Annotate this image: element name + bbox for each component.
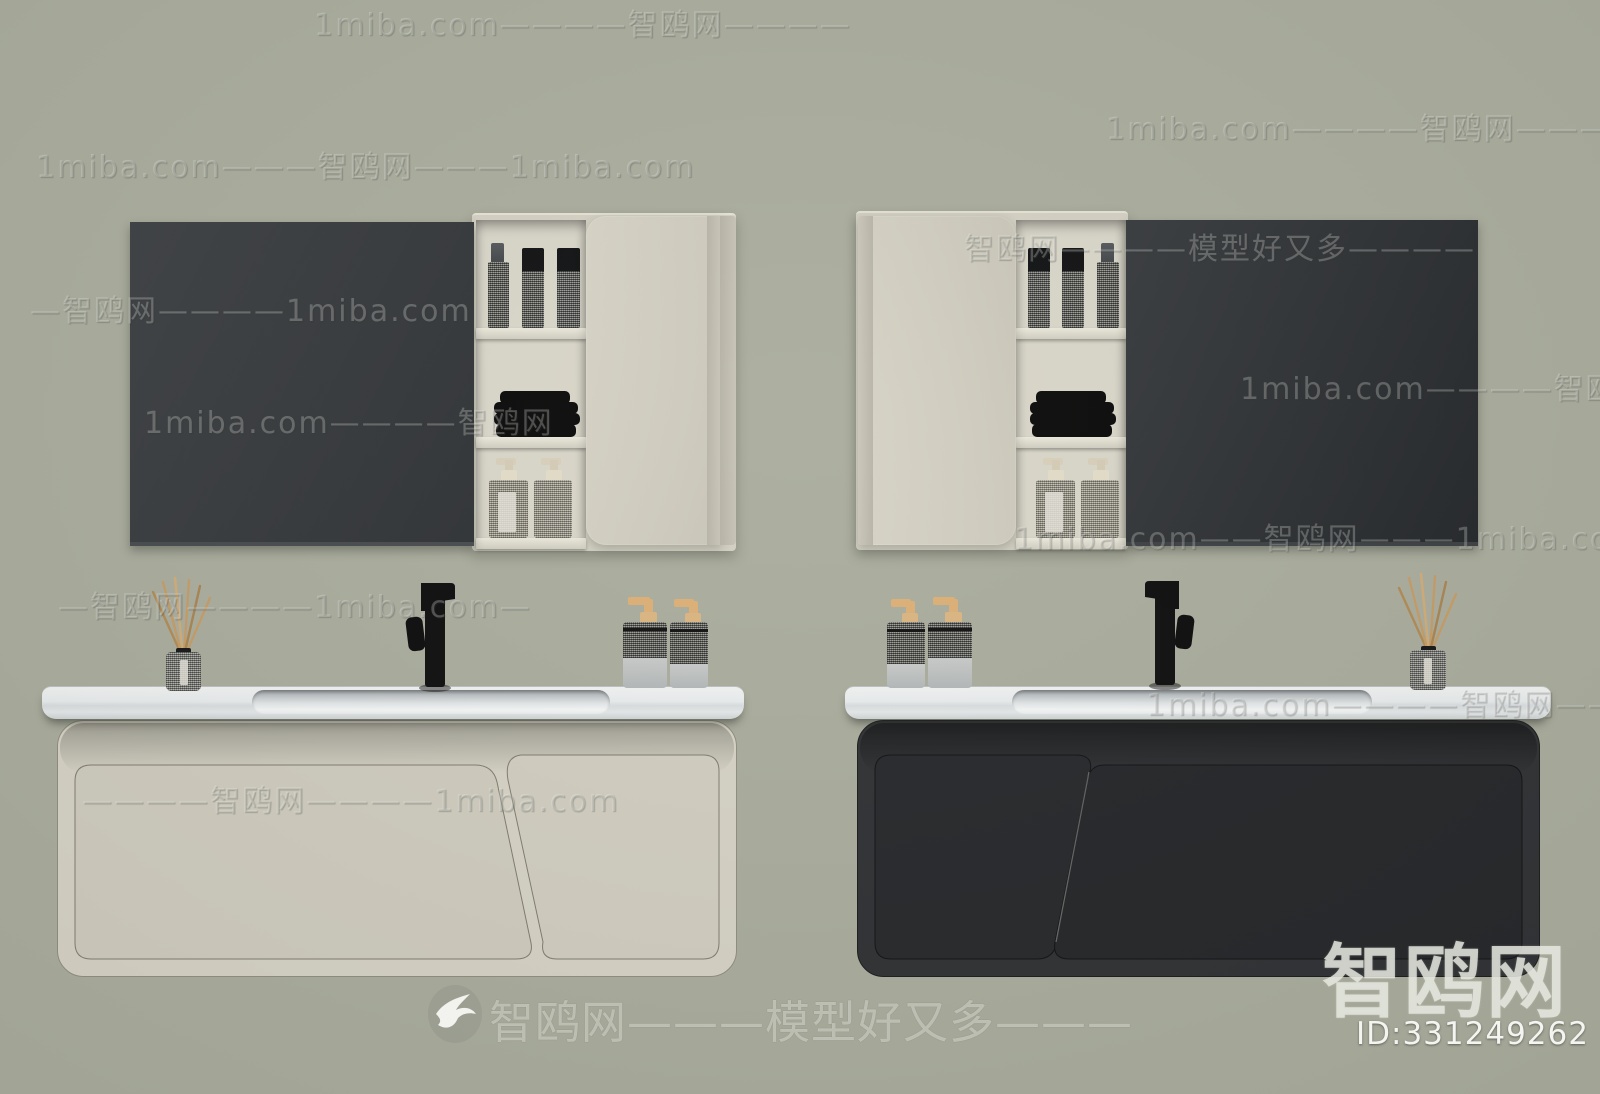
model-id: ID:331249262	[1356, 1016, 1589, 1052]
seagull-logo-icon	[426, 984, 486, 1046]
right-mirror-panel	[1126, 220, 1478, 546]
folded-towel	[1032, 424, 1112, 437]
bottle-band	[670, 629, 708, 632]
diffuser-label	[1424, 658, 1432, 684]
left-sink-recess	[252, 690, 610, 714]
spray-bottle	[488, 262, 509, 328]
shelf-divider	[1016, 328, 1126, 339]
cosmetic-bottle	[1028, 271, 1050, 328]
bottle-band	[623, 628, 667, 631]
bottle-band	[928, 628, 972, 631]
right-sink-recess	[1012, 690, 1372, 714]
watermark-row: 1miba.com————智鸥网————	[314, 0, 852, 44]
shelf-divider	[1016, 437, 1126, 448]
bathroom-vanity-render: 1miba.com————智鸥网———— 1miba.com————智鸥网———…	[0, 0, 1600, 1094]
soap-dispenser-shelf	[534, 480, 572, 538]
shelf-divider	[476, 437, 586, 448]
folded-towel	[496, 424, 576, 437]
shelf-divider	[476, 328, 586, 339]
bottle-cap	[557, 248, 580, 273]
left-counter-basin	[42, 686, 744, 719]
cosmetic-bottle	[1062, 271, 1084, 328]
shelf-base	[1016, 538, 1126, 549]
soap-dispenser-body	[623, 658, 667, 688]
bottle-label	[1045, 492, 1063, 532]
soap-dispenser-shelf	[1081, 480, 1119, 538]
bottle-cap	[1028, 248, 1050, 273]
spray-bottle	[1097, 262, 1119, 328]
left-drawer-panel	[75, 765, 531, 959]
soap-dispenser-body	[887, 664, 925, 688]
bottle-label	[498, 492, 516, 532]
right-counter-basin	[845, 686, 1551, 719]
right-cabinet-door	[858, 216, 1016, 545]
left-cabinet-door	[586, 216, 722, 545]
watermark-row: 1miba.com———智鸥网———1miba.com	[36, 142, 695, 186]
diffuser-label	[180, 660, 188, 685]
soap-dispenser-body	[670, 664, 708, 688]
watermark-row: 1miba.com————智鸥网————	[1106, 104, 1600, 148]
soap-dispenser-body	[928, 658, 972, 688]
footer-brand-line: 智鸥网———模型好又多———	[489, 986, 1133, 1051]
left-mirror-panel	[130, 222, 474, 546]
cosmetic-bottle	[557, 271, 580, 328]
bottle-cap	[1062, 248, 1084, 273]
bottle-band	[887, 629, 925, 632]
cosmetic-bottle	[522, 271, 544, 328]
shelf-base	[476, 538, 586, 549]
right-reed-diffuser-sticks	[1394, 572, 1464, 654]
left-vanity-cabinet	[57, 720, 737, 977]
right-faucet	[1138, 579, 1198, 691]
left-reed-diffuser-sticks	[148, 576, 218, 658]
left-faucet	[402, 581, 462, 693]
left-carcass-side-edge	[720, 216, 736, 545]
bottle-cap	[522, 248, 544, 273]
